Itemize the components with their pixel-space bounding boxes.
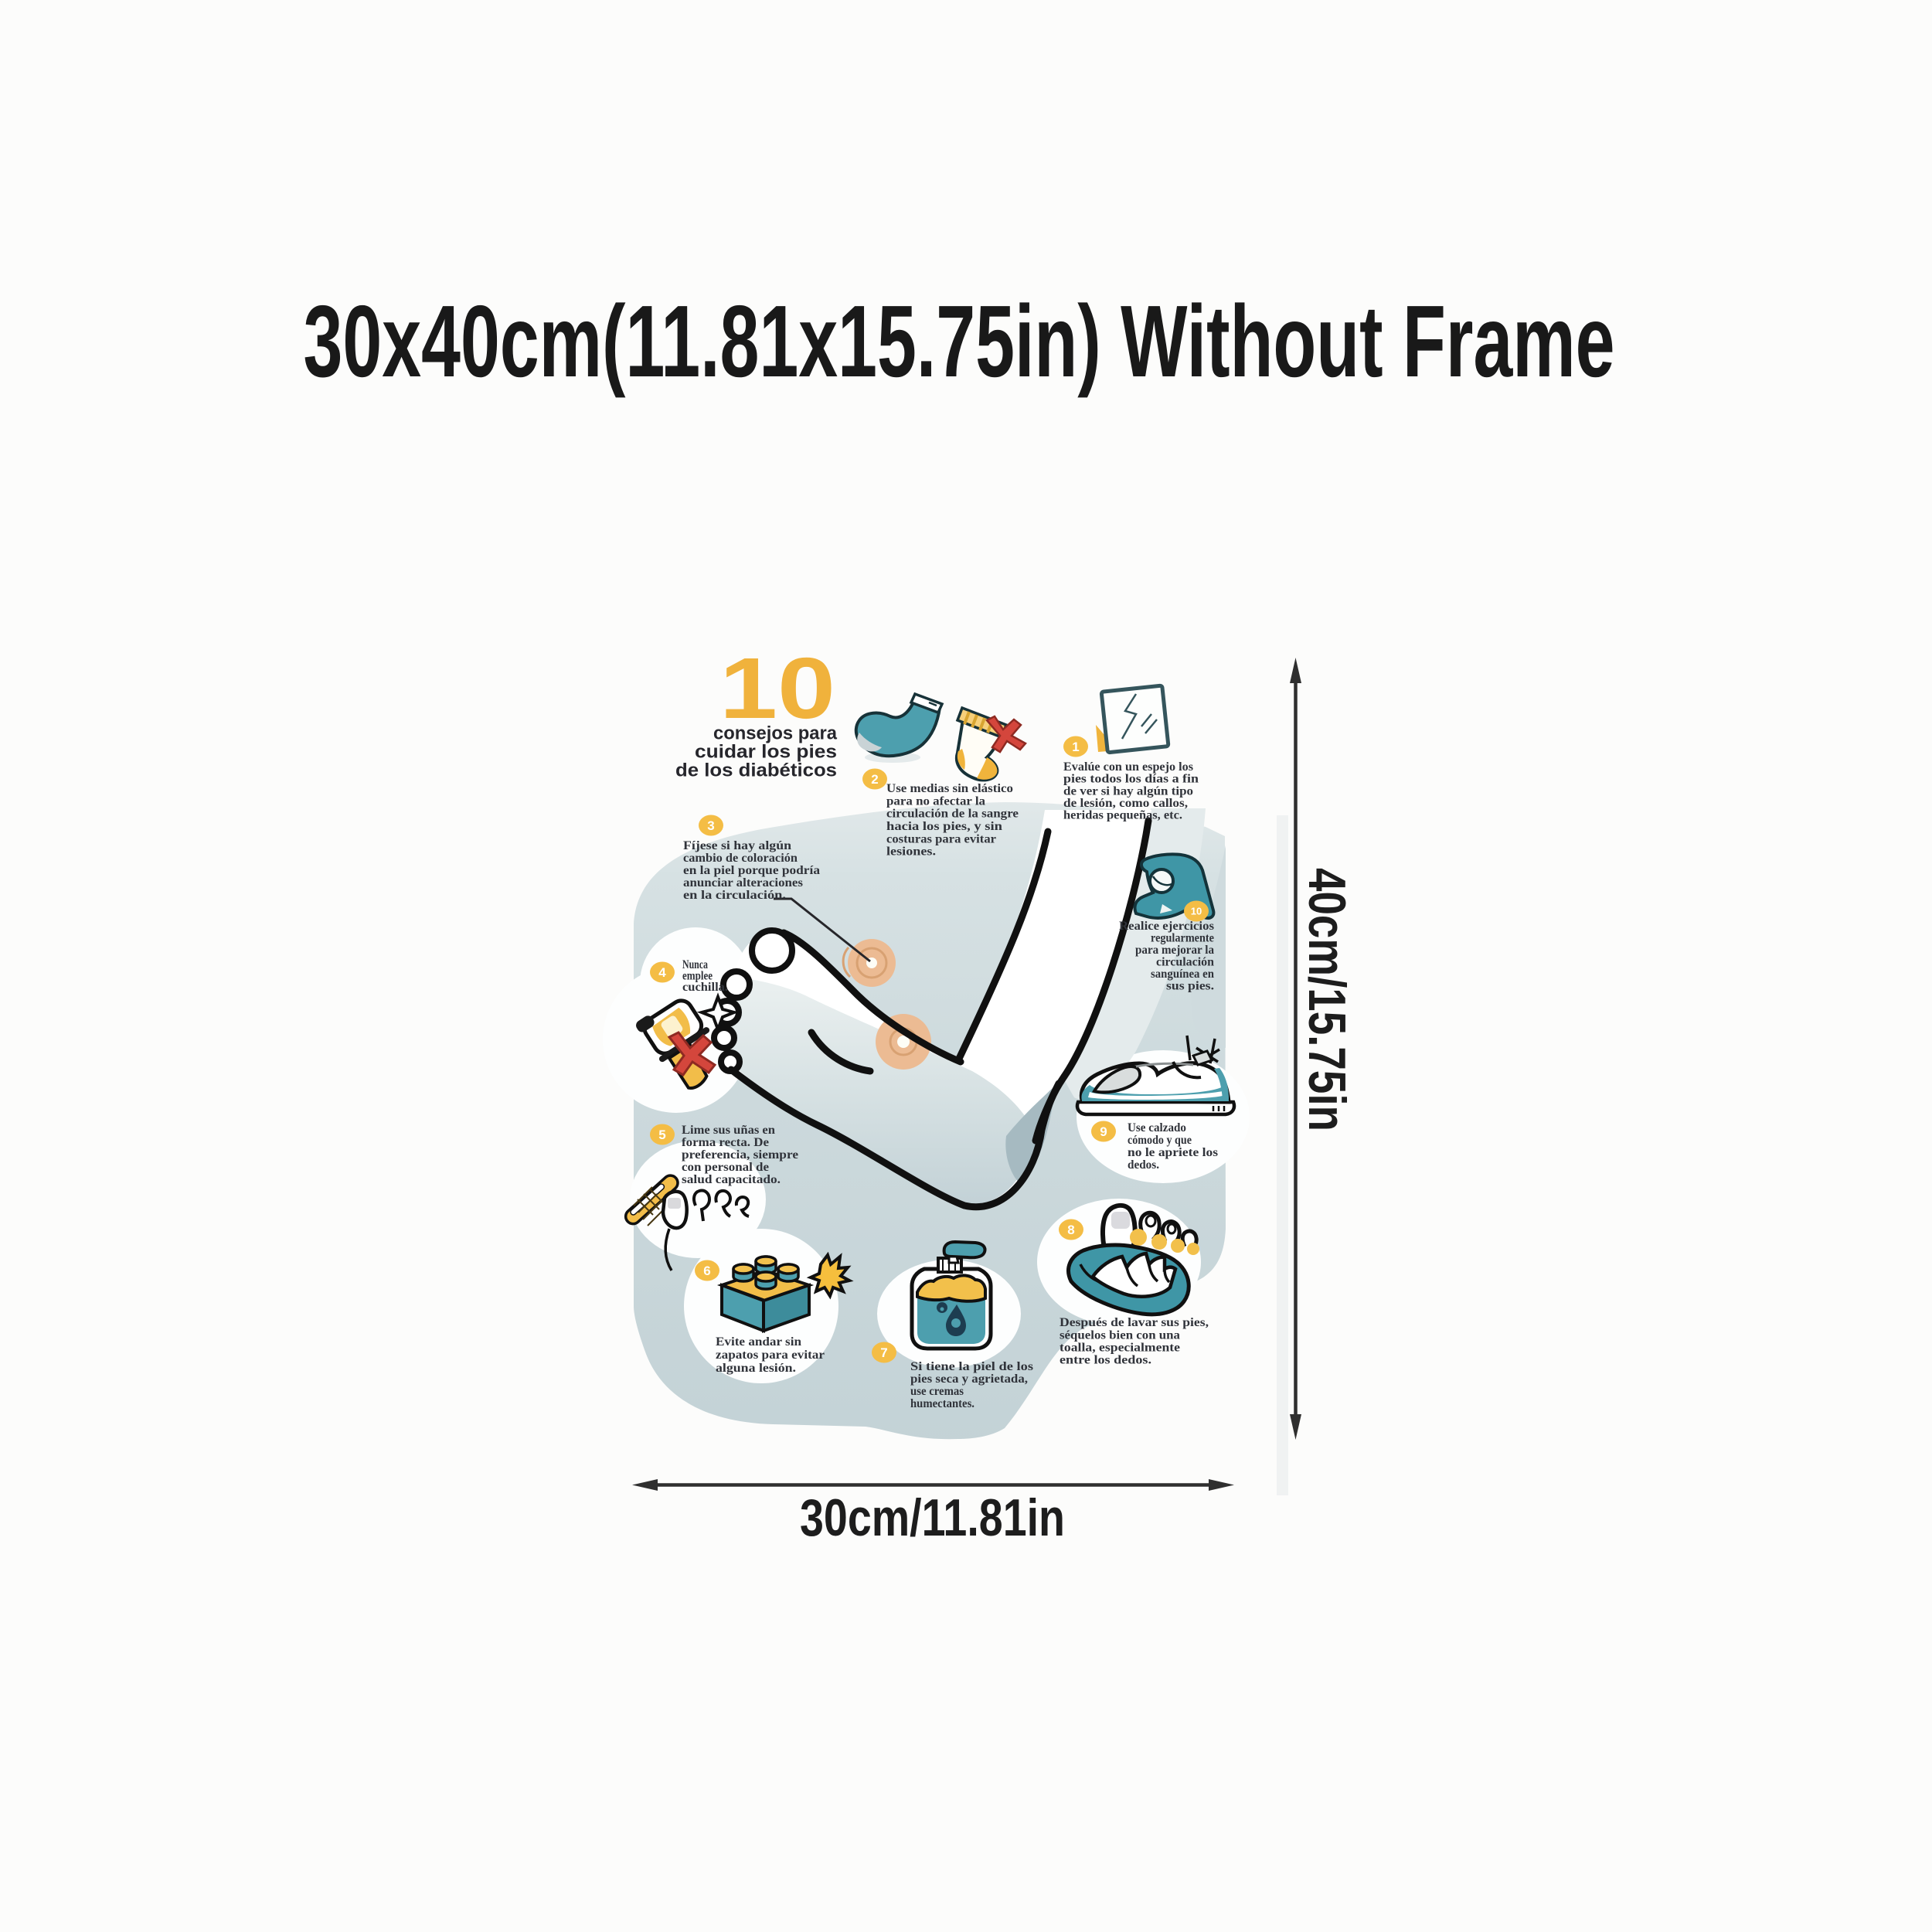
- svg-text:Fíjese si hay algún: Fíjese si hay algún: [683, 839, 791, 852]
- svg-text:3: 3: [707, 818, 714, 833]
- svg-text:10: 10: [719, 640, 835, 736]
- svg-text:cuchilla.: cuchilla.: [682, 981, 728, 994]
- svg-text:salud capacitado.: salud capacitado.: [682, 1173, 781, 1186]
- svg-text:circulación: circulación: [1156, 956, 1214, 969]
- svg-text:cambio de coloración: cambio de coloración: [683, 852, 798, 865]
- svg-text:preferencia, siempre: preferencia, siempre: [682, 1148, 798, 1162]
- svg-text:30cm/11.81in: 30cm/11.81in: [800, 1488, 1065, 1547]
- svg-text:no le apriete los: no le apriete los: [1128, 1146, 1218, 1159]
- svg-text:9: 9: [1100, 1124, 1107, 1139]
- svg-text:30x40cm(11.81x15.75in) Without: 30x40cm(11.81x15.75in) Without Frame: [304, 284, 1615, 398]
- svg-text:entre los dedos.: entre los dedos.: [1060, 1354, 1151, 1367]
- svg-text:regularmente: regularmente: [1151, 932, 1214, 945]
- svg-text:lesiones.: lesiones.: [886, 845, 936, 859]
- svg-text:1: 1: [1072, 740, 1079, 754]
- svg-text:sus pies.: sus pies.: [1166, 980, 1214, 993]
- svg-text:use cremas: use cremas: [910, 1385, 964, 1398]
- svg-text:Evalúe con un espejo los: Evalúe con un espejo los: [1063, 760, 1193, 774]
- svg-text:Si tiene la piel de los: Si tiene la piel de los: [910, 1360, 1033, 1373]
- svg-text:con personal de: con personal de: [682, 1161, 769, 1174]
- svg-text:toalla, especialmente: toalla, especialmente: [1060, 1342, 1180, 1355]
- svg-text:forma recta. De: forma recta. De: [682, 1136, 769, 1149]
- svg-text:5: 5: [658, 1128, 665, 1142]
- svg-text:heridas pequeñas, etc.: heridas pequeñas, etc.: [1063, 809, 1182, 822]
- svg-text:Use medias sin elástico: Use medias sin elástico: [886, 782, 1013, 795]
- svg-text:2: 2: [871, 772, 878, 787]
- svg-text:para no afectar la: para no afectar la: [886, 794, 985, 808]
- svg-text:Después de lavar sus pies,: Después de lavar sus pies,: [1060, 1316, 1209, 1329]
- svg-text:Evite andar sin: Evite andar sin: [716, 1335, 801, 1349]
- svg-text:40cm/15.75in: 40cm/15.75in: [1298, 868, 1356, 1131]
- svg-text:dedos.: dedos.: [1128, 1158, 1159, 1172]
- svg-text:6: 6: [703, 1264, 710, 1278]
- svg-text:en la circulación.: en la circulación.: [683, 889, 786, 902]
- svg-text:zapatos para evitar: zapatos para evitar: [716, 1349, 825, 1362]
- svg-text:hacia los pies, y sin: hacia los pies, y sin: [886, 820, 1002, 833]
- svg-text:7: 7: [880, 1345, 887, 1360]
- svg-text:alguna lesión.: alguna lesión.: [716, 1362, 796, 1375]
- svg-text:4: 4: [658, 965, 666, 980]
- svg-text:en la piel porque podría: en la piel porque podría: [683, 864, 820, 877]
- svg-text:de ver si hay algún tipo: de ver si hay algún tipo: [1063, 784, 1193, 798]
- svg-text:circulación de la sangre: circulación de la sangre: [886, 808, 1019, 821]
- svg-text:10: 10: [1191, 906, 1202, 917]
- svg-text:para mejorar la: para mejorar la: [1135, 944, 1214, 957]
- svg-text:costuras para evitar: costuras para evitar: [886, 832, 996, 845]
- svg-text:Use calzado: Use calzado: [1128, 1121, 1186, 1134]
- svg-text:de lesión, como callos,: de lesión, como callos,: [1063, 797, 1188, 810]
- svg-text:de los diabéticos: de los diabéticos: [675, 760, 837, 781]
- svg-text:séquelos bien con una: séquelos bien con una: [1060, 1328, 1180, 1342]
- svg-text:pies todos los días a fin: pies todos los días a fin: [1063, 773, 1199, 786]
- svg-text:cómodo y que: cómodo y que: [1128, 1134, 1192, 1147]
- svg-text:anunciar alteraciones: anunciar alteraciones: [683, 876, 803, 889]
- svg-text:Lime sus uñas en: Lime sus uñas en: [682, 1124, 775, 1137]
- svg-text:Realice ejercicios: Realice ejercicios: [1119, 920, 1214, 933]
- svg-text:humectantes.: humectantes.: [910, 1397, 975, 1410]
- svg-text:sanguínea en: sanguínea en: [1151, 968, 1214, 981]
- svg-text:pies seca y agrietada,: pies seca y agrietada,: [910, 1372, 1028, 1386]
- svg-text:8: 8: [1067, 1223, 1074, 1237]
